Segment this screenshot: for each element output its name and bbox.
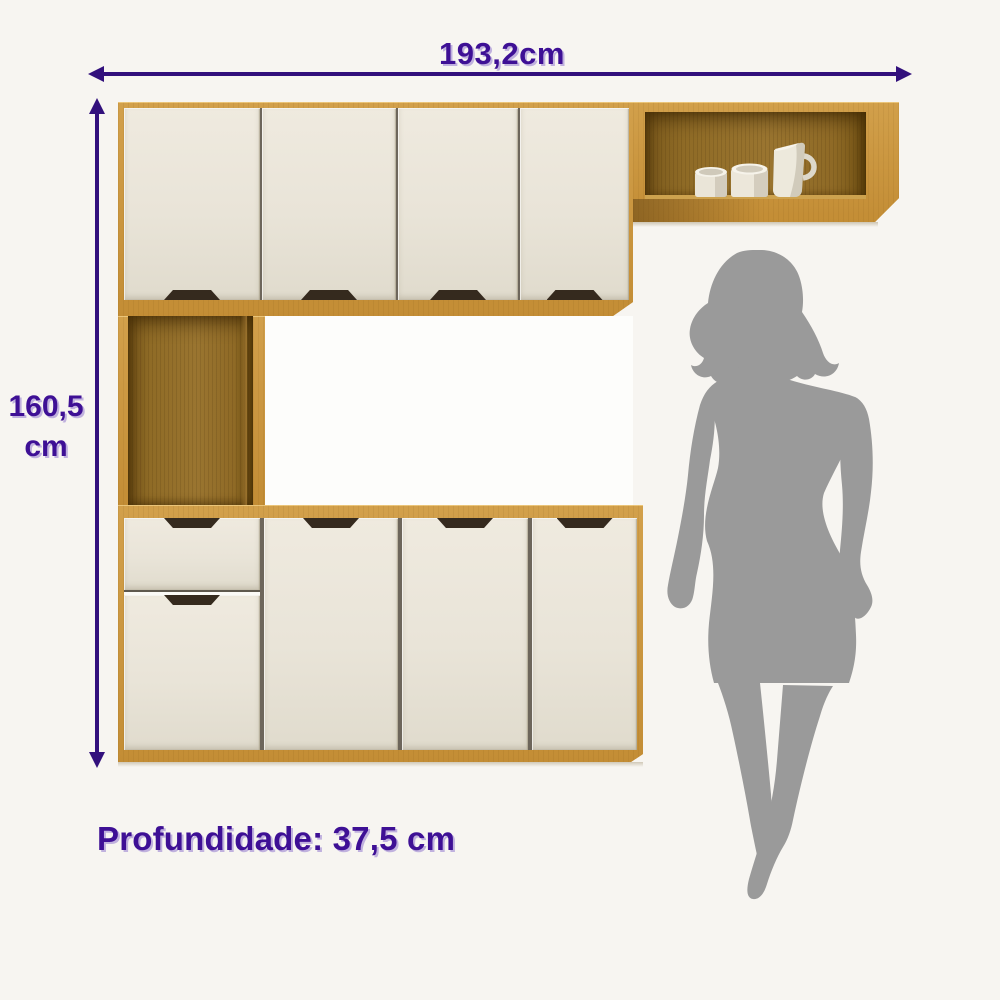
- silhouette-body: [705, 356, 862, 683]
- floor-shadow: [118, 762, 643, 767]
- upper-door-3: [398, 108, 518, 300]
- width-arrow-line: [96, 72, 904, 76]
- lower-doors-row: [124, 518, 637, 750]
- lower-door-2-handle: [303, 518, 359, 528]
- lower-door-3-handle: [437, 518, 493, 528]
- woman-silhouette: [652, 246, 882, 906]
- upper-door-2-handle: [301, 290, 357, 300]
- upper-door-4: [520, 108, 629, 300]
- open-niche-interior: [128, 316, 253, 506]
- upper-door-4-handle: [547, 290, 603, 300]
- product-image: 193,2cm 160,5 cm Profundidade: 37,5 cm: [0, 0, 1000, 1000]
- mug-icon: [695, 167, 727, 197]
- lower-cabinet: [118, 505, 643, 762]
- lower-door-1: [124, 595, 260, 750]
- lower-door-3: [402, 518, 528, 750]
- lower-door-4: [532, 518, 637, 750]
- upper-door-3-handle: [430, 290, 486, 300]
- lower-door-2: [264, 518, 398, 750]
- arrow-right-icon: [896, 66, 912, 82]
- lower-door-1-handle: [164, 595, 220, 605]
- wall-shelf-under-shade: [633, 199, 763, 222]
- upper-cabinet: [118, 102, 633, 316]
- shelf-crockery: [688, 140, 820, 197]
- height-label-unit: cm: [0, 430, 92, 464]
- drawer-handle: [164, 518, 220, 528]
- cabinet-open-gap: [265, 316, 633, 506]
- upper-door-1: [124, 108, 260, 300]
- arrow-up-icon: [89, 98, 105, 114]
- depth-label: Profundidade: 37,5 cm: [97, 820, 455, 858]
- arrow-down-icon: [89, 752, 105, 768]
- lower-section-drawer: [124, 518, 260, 750]
- mug-icon: [731, 164, 768, 198]
- upper-doors-row: [124, 108, 629, 300]
- lower-door-4-handle: [557, 518, 613, 528]
- upper-door-1-handle: [164, 290, 220, 300]
- upper-door-2: [262, 108, 396, 300]
- shelf-shadow: [633, 222, 878, 227]
- height-label-value: 160,5: [0, 390, 92, 424]
- open-niche-inner-edge: [241, 316, 247, 506]
- height-arrow-line: [95, 106, 99, 758]
- silhouette-right-arm: [840, 397, 873, 619]
- pitcher-icon: [773, 143, 814, 197]
- drawer-front: [124, 518, 260, 590]
- arrow-left-icon: [88, 66, 104, 82]
- open-niche: [118, 316, 265, 506]
- width-label: 193,2cm: [352, 36, 652, 72]
